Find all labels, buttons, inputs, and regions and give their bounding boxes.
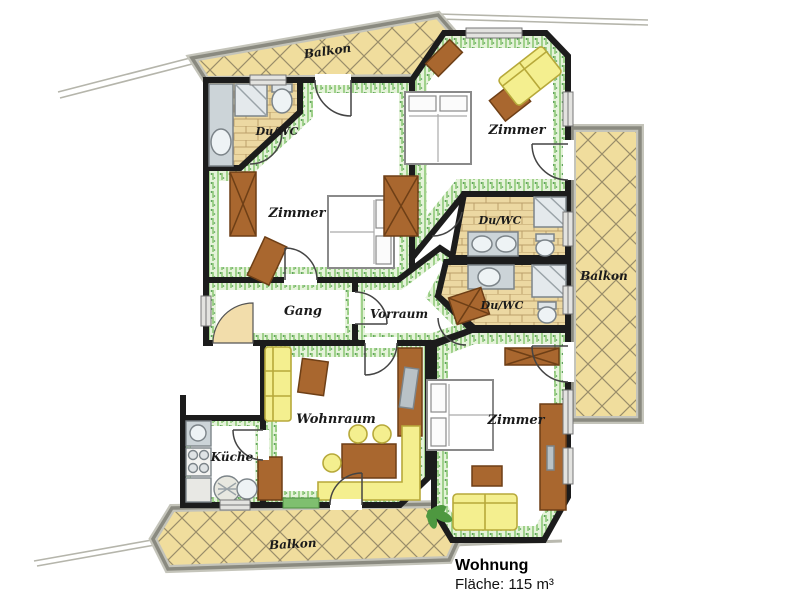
caption-area: Fläche: 115 m³ (455, 576, 554, 593)
round-table (237, 479, 257, 499)
toilet-icon (272, 89, 292, 113)
label-kueche: Küche (210, 450, 254, 464)
label-duwc-right-upper: Du/WC (478, 214, 522, 227)
label-duwc-top-left: Du/WC (255, 125, 299, 138)
wardrobe-zimmer-left-east (384, 176, 418, 236)
sink-icon (478, 268, 500, 286)
label-zimmer-bottom-right: Zimmer (486, 413, 545, 428)
fridge-kueche (258, 457, 282, 500)
window (201, 296, 211, 326)
dining-table (342, 444, 396, 478)
planter-icon (283, 498, 319, 508)
window (250, 75, 286, 85)
label-balkon-bottom: Balkon (268, 536, 317, 553)
label-zimmer-top-right: Zimmer (487, 123, 546, 138)
sink-icon (496, 236, 516, 252)
floor-plan-page: Balkon Zimmer Du/WC Zimmer Gang Vorraum … (0, 0, 800, 600)
window (563, 92, 573, 126)
window (466, 28, 522, 38)
toilet-icon (538, 307, 556, 323)
wardrobe-left-wall (230, 172, 256, 236)
toilet-icon (536, 240, 554, 256)
chair (349, 425, 367, 443)
caption: Wohnung Fläche: 115 m³ (455, 557, 554, 593)
sink-icon (472, 236, 492, 252)
window (563, 286, 573, 314)
label-gang: Gang (284, 304, 322, 319)
window (563, 212, 573, 246)
label-wohnraum: Wohnraum (296, 412, 376, 427)
sofa-wohnraum-left (265, 347, 291, 421)
window (563, 448, 573, 484)
caption-title: Wohnung (455, 557, 528, 574)
label-duwc-right-lower: Du/WC (480, 299, 524, 312)
window (563, 390, 573, 434)
chair (323, 454, 341, 472)
bed-bottom-right (427, 380, 493, 450)
label-zimmer-left: Zimmer (267, 206, 326, 221)
label-balkon-right: Balkon (579, 269, 628, 283)
window (220, 500, 250, 510)
sofa-bottom-right (453, 494, 517, 530)
floor-plan-svg: Balkon Zimmer Du/WC Zimmer Gang Vorraum … (0, 0, 800, 600)
chair (373, 425, 391, 443)
side-table-zbr (472, 466, 502, 486)
sideboard-wohnraum (398, 348, 422, 436)
bed-top-right (405, 92, 471, 164)
counter (186, 478, 211, 502)
label-vorraum: Vorraum (370, 307, 428, 321)
armchair-wohnraum (298, 358, 328, 395)
sink-icon (211, 129, 231, 155)
